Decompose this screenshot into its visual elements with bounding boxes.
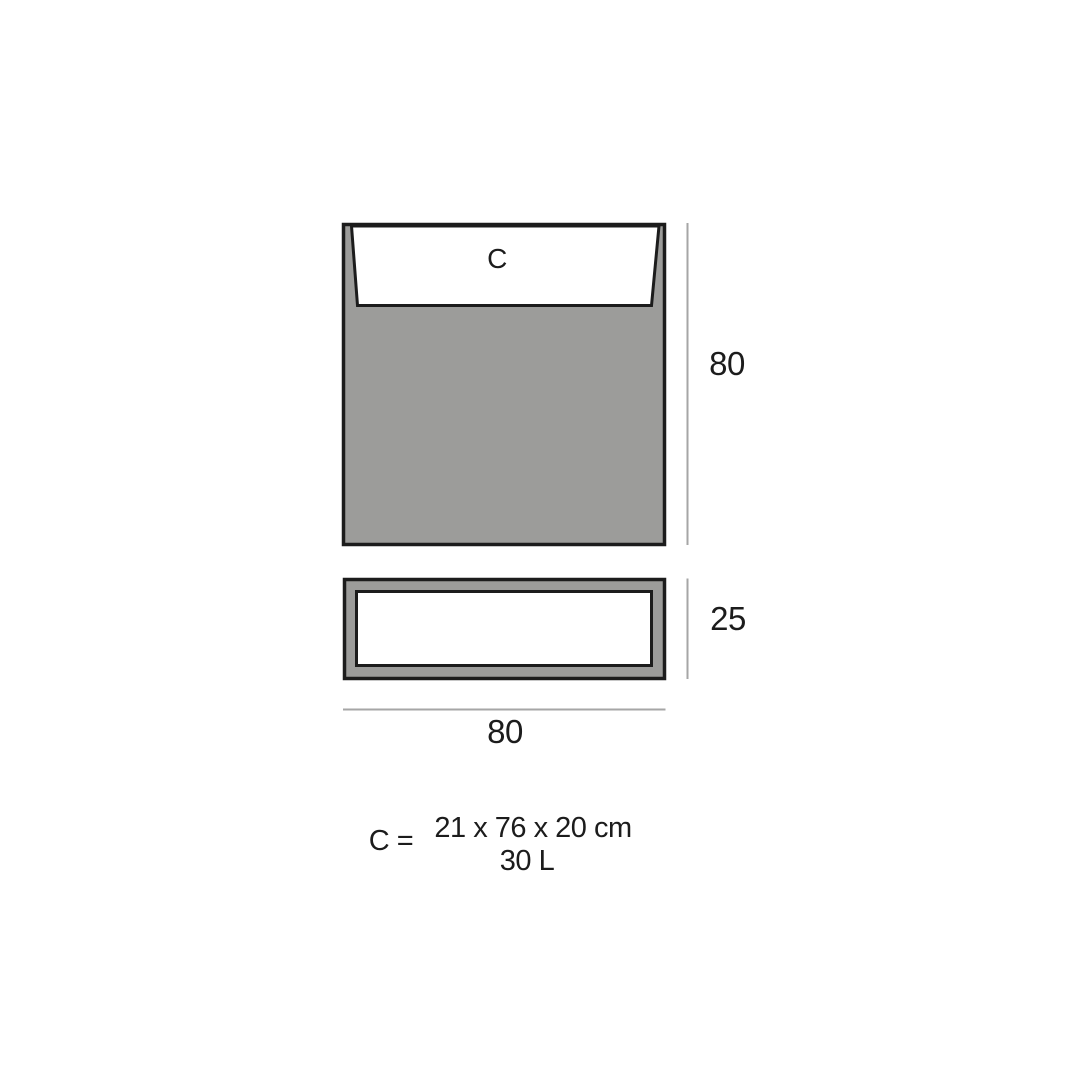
diagram-canvas: C 80 25 80 C = 21 x 76 x 20 cm 30 L <box>0 0 1080 1080</box>
dimension-diagram: C 80 25 80 C = 21 x 76 x 20 cm 30 L <box>0 0 1080 1080</box>
spec-legend: C = 21 x 76 x 20 cm 30 L <box>369 812 632 877</box>
spec-key: C = <box>369 825 413 857</box>
width-dim-label: 80 <box>487 713 523 750</box>
top-depth-dim-label: 25 <box>710 600 746 637</box>
top-view-cavity <box>357 592 652 666</box>
front-view-label: C <box>487 243 507 274</box>
front-height-dim-label: 80 <box>709 345 745 382</box>
spec-dimensions: 21 x 76 x 20 cm <box>434 812 631 844</box>
spec-volume: 30 L <box>500 845 555 877</box>
front-view: C <box>344 225 665 545</box>
top-view <box>345 580 665 679</box>
